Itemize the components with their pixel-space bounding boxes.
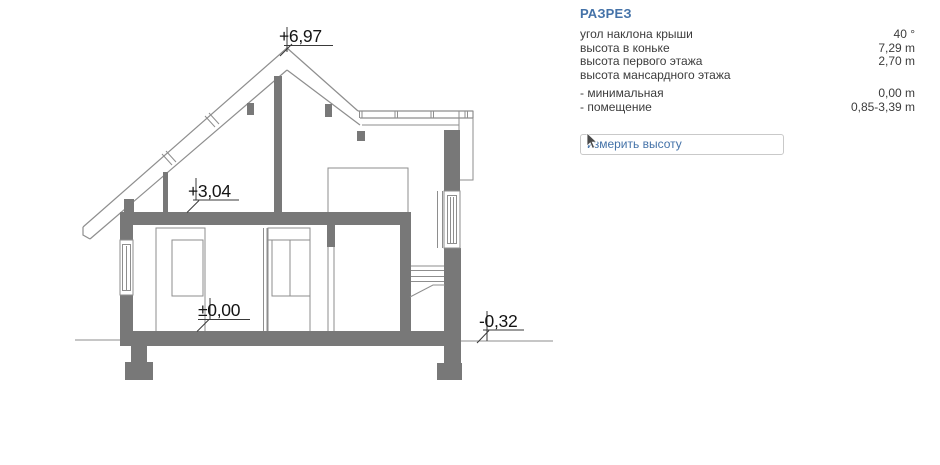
roof-right-inner-line [287, 70, 360, 125]
left-wall-below-window [120, 295, 133, 331]
section-info-panel: РАЗРЕЗ угол наклона крыши 40 ° высота в … [580, 6, 915, 155]
row-label: высота мансардного этажа [580, 69, 731, 83]
left-footing [125, 362, 153, 380]
partition-lines [264, 228, 268, 331]
attic-floor-slab [120, 212, 411, 225]
measurement-row-ridge-height: высота в коньке 7,29 m [580, 42, 915, 56]
level-attic-floor-label: +3,04 [188, 181, 231, 201]
row-value: 7,29 m [878, 42, 915, 56]
right-footing [437, 363, 462, 380]
measurement-row-attic-height-header: высота мансардного этажа [580, 69, 915, 83]
section-drawing: +6,97 +3,04 ±0,00 -0,32 [0, 0, 570, 460]
row-value: 0,85-3,39 m [851, 101, 915, 115]
doorway-frame-lines [328, 247, 334, 331]
level-terrain: -0,32 [477, 311, 524, 343]
row-value: 0,00 m [878, 87, 915, 101]
door-outline-2 [268, 228, 310, 331]
purlin-right [325, 104, 332, 117]
measurement-row-roof-angle: угол наклона крыши 40 ° [580, 28, 915, 42]
stairs [410, 266, 445, 297]
row-label: высота первого этажа [580, 55, 702, 69]
left-wall-plate [124, 199, 134, 212]
ground-floor-slab [120, 331, 461, 346]
attic-box-outline [328, 168, 408, 213]
bay-roof-ticks [360, 112, 468, 119]
row-label: угол наклона крыши [580, 28, 693, 42]
row-value: 40 ° [894, 28, 915, 42]
row-value: 2,70 m [878, 55, 915, 69]
roof-left-outer-line [83, 48, 287, 227]
measurement-row-minimal: - минимальная 0,00 m [580, 87, 915, 101]
level-attic-floor: +3,04 [187, 178, 239, 213]
level-terrain-label: -0,32 [479, 311, 517, 331]
left-foundation [131, 346, 147, 363]
roof-joint-ticks [162, 113, 219, 165]
measurement-row-first-floor-height: высота первого этажа 2,70 m [580, 55, 915, 69]
level-ridge-label: +6,97 [279, 26, 322, 46]
purlin-left [247, 103, 254, 115]
row-label: - минимальная [580, 87, 664, 101]
measurements-list: угол наклона крыши 40 ° высота в коньке … [580, 28, 915, 114]
door-panel-1 [172, 240, 203, 296]
interior-wall [400, 225, 411, 331]
level-ground-floor-label: ±0,00 [198, 300, 241, 320]
door-lintel-wall [327, 212, 335, 247]
left-wall-above-window [120, 225, 133, 240]
right-window [438, 191, 461, 248]
door-panel-2 [272, 240, 310, 296]
measurement-row-room: - помещение 0,85-3,39 m [580, 101, 915, 115]
bay-roof-fascia [459, 111, 473, 180]
attic-center-wall [274, 76, 282, 212]
interior-outlines [156, 228, 334, 331]
panel-title: РАЗРЕЗ [580, 6, 915, 21]
roof-eaves-cap [83, 227, 90, 239]
measure-height-button[interactable]: измерить высоту [580, 134, 784, 155]
level-ridge: +6,97 [279, 26, 333, 56]
attic-knee-wall [163, 172, 168, 212]
row-label: высота в коньке [580, 42, 670, 56]
right-window-reveal [438, 191, 443, 248]
row-label: - помещение [580, 101, 652, 115]
right-wall-above-window [444, 130, 460, 191]
purlin-bay [357, 131, 365, 141]
roof-right-outer-line [287, 48, 358, 111]
left-window [120, 240, 133, 295]
